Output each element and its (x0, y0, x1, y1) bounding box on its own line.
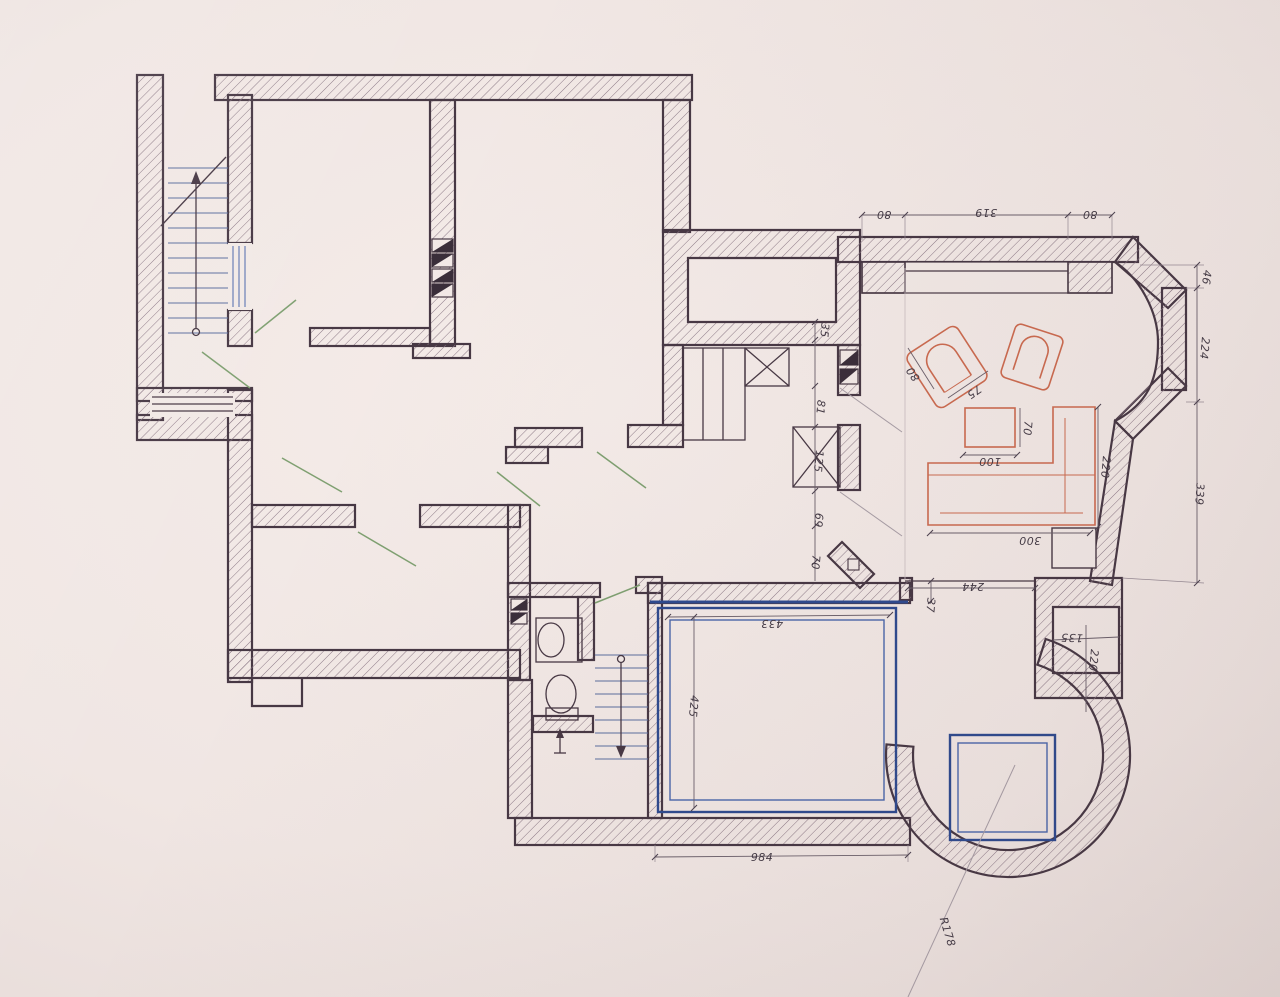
living-window-recess (862, 262, 1112, 293)
wall-left-outer-mid (228, 390, 252, 682)
wall-shaft-pillar (838, 425, 860, 490)
wall-bath-divider (578, 597, 594, 660)
dimension-label-offset-244: 244 (962, 580, 984, 593)
dimension-label-top-319: 319 (975, 206, 997, 219)
toilet-bowl (546, 675, 576, 713)
dimension-label-chain-70: 70 (808, 554, 822, 570)
washbasin-bowl (538, 623, 564, 657)
wall-stairwell-right-lower (228, 310, 252, 346)
wall-terrace-top (648, 583, 910, 603)
living-room-furniture (904, 323, 1096, 568)
wall-topmid-bottom-b (628, 425, 683, 447)
dimension-label-top-left-80: 80 (877, 208, 892, 221)
dimension-label-step-37: 37 (923, 597, 937, 613)
stair-window-bg (228, 243, 252, 310)
stair-cut-line (161, 157, 226, 226)
dimension-label-chain-125: 125 (811, 450, 826, 473)
wall-divider-roomA (430, 100, 455, 346)
dimension-label-chain-81: 81 (813, 399, 827, 415)
wall-roomC-bottom (228, 650, 520, 678)
dimension-label-niche-135: 135 (1061, 631, 1084, 645)
dimension-label-bottom-984: 984 (751, 851, 773, 864)
dimension-label-terrace-425: 425 (686, 695, 701, 718)
floor-plan-photo: 8031980462243393581125697037244135220807… (0, 0, 1280, 997)
wall-bottom-main (515, 818, 910, 845)
stair-up-arrow (191, 171, 201, 184)
terrace-inner-liner (670, 620, 884, 800)
wall-BC-divider-b (420, 505, 520, 527)
wall-BC-divider-a (252, 505, 355, 527)
dimension-label-right-46: 46 (1199, 269, 1214, 285)
dimension-label-chain-35: 35 (817, 322, 831, 338)
tower-square-inner (958, 743, 1047, 832)
wall-living-top (838, 237, 1138, 262)
wall-wc-bottom (533, 716, 593, 732)
dimension-label-table-100: 100 (979, 455, 1001, 468)
washbasin-counter (536, 618, 582, 662)
wall-stairwell-right-upper (228, 95, 252, 243)
dimension-label-right-224: 224 (1197, 337, 1212, 360)
door-pivot-block (848, 559, 859, 570)
stair-start-marker (618, 656, 625, 663)
dimension-label-table-70: 70 (1020, 420, 1034, 436)
wall-topmid-right-lower (663, 345, 683, 425)
wall-topmid-right-upper (663, 100, 690, 232)
stair-down-arrow (616, 746, 626, 758)
wardrobe-x-box-upper (745, 348, 789, 386)
wall-top (215, 75, 692, 100)
stair-start-marker (193, 329, 200, 336)
dimension-label-radius: R178 (937, 916, 958, 949)
wall-left-strip (137, 75, 163, 420)
wall-bay-chamfer-bottom (1115, 368, 1186, 439)
wall-topmid-bottom-a (515, 428, 582, 447)
wall-terrace-left (648, 583, 662, 818)
dimension-label-sofa-220: 220 (1098, 456, 1113, 479)
wall-topmid-bottom-stub (506, 447, 548, 463)
wall-bump-out (252, 678, 302, 706)
wall-tower-ring (886, 639, 1130, 877)
window-pier-right (1068, 262, 1112, 293)
sofa-L-shape (928, 407, 1095, 525)
dimension-label-top-right-80: 80 (1083, 208, 1098, 221)
armchair-2 (1000, 323, 1065, 392)
wall-roomA-bottom (310, 328, 430, 346)
wall-left-lower (508, 680, 532, 818)
stairs-lower (595, 655, 648, 759)
dimension-label-sofa-300: 300 (1019, 534, 1041, 547)
dimension-label-right-339: 339 (1192, 483, 1206, 506)
walls (137, 75, 1186, 877)
stairs-upper (161, 157, 228, 336)
floor-plan-drawing: 8031980462243393581125697037244135220807… (0, 0, 1280, 997)
dimension-label-terrace-433: 433 (761, 617, 783, 630)
tower-square-outer (950, 735, 1055, 840)
window-pier-left (862, 262, 905, 293)
coffee-table (965, 408, 1015, 447)
dimension-label-niche-220: 220 (1086, 649, 1101, 672)
dimension-label-chain-69: 69 (811, 512, 825, 528)
cabinet (683, 348, 745, 440)
wall-bath-top (508, 583, 600, 597)
